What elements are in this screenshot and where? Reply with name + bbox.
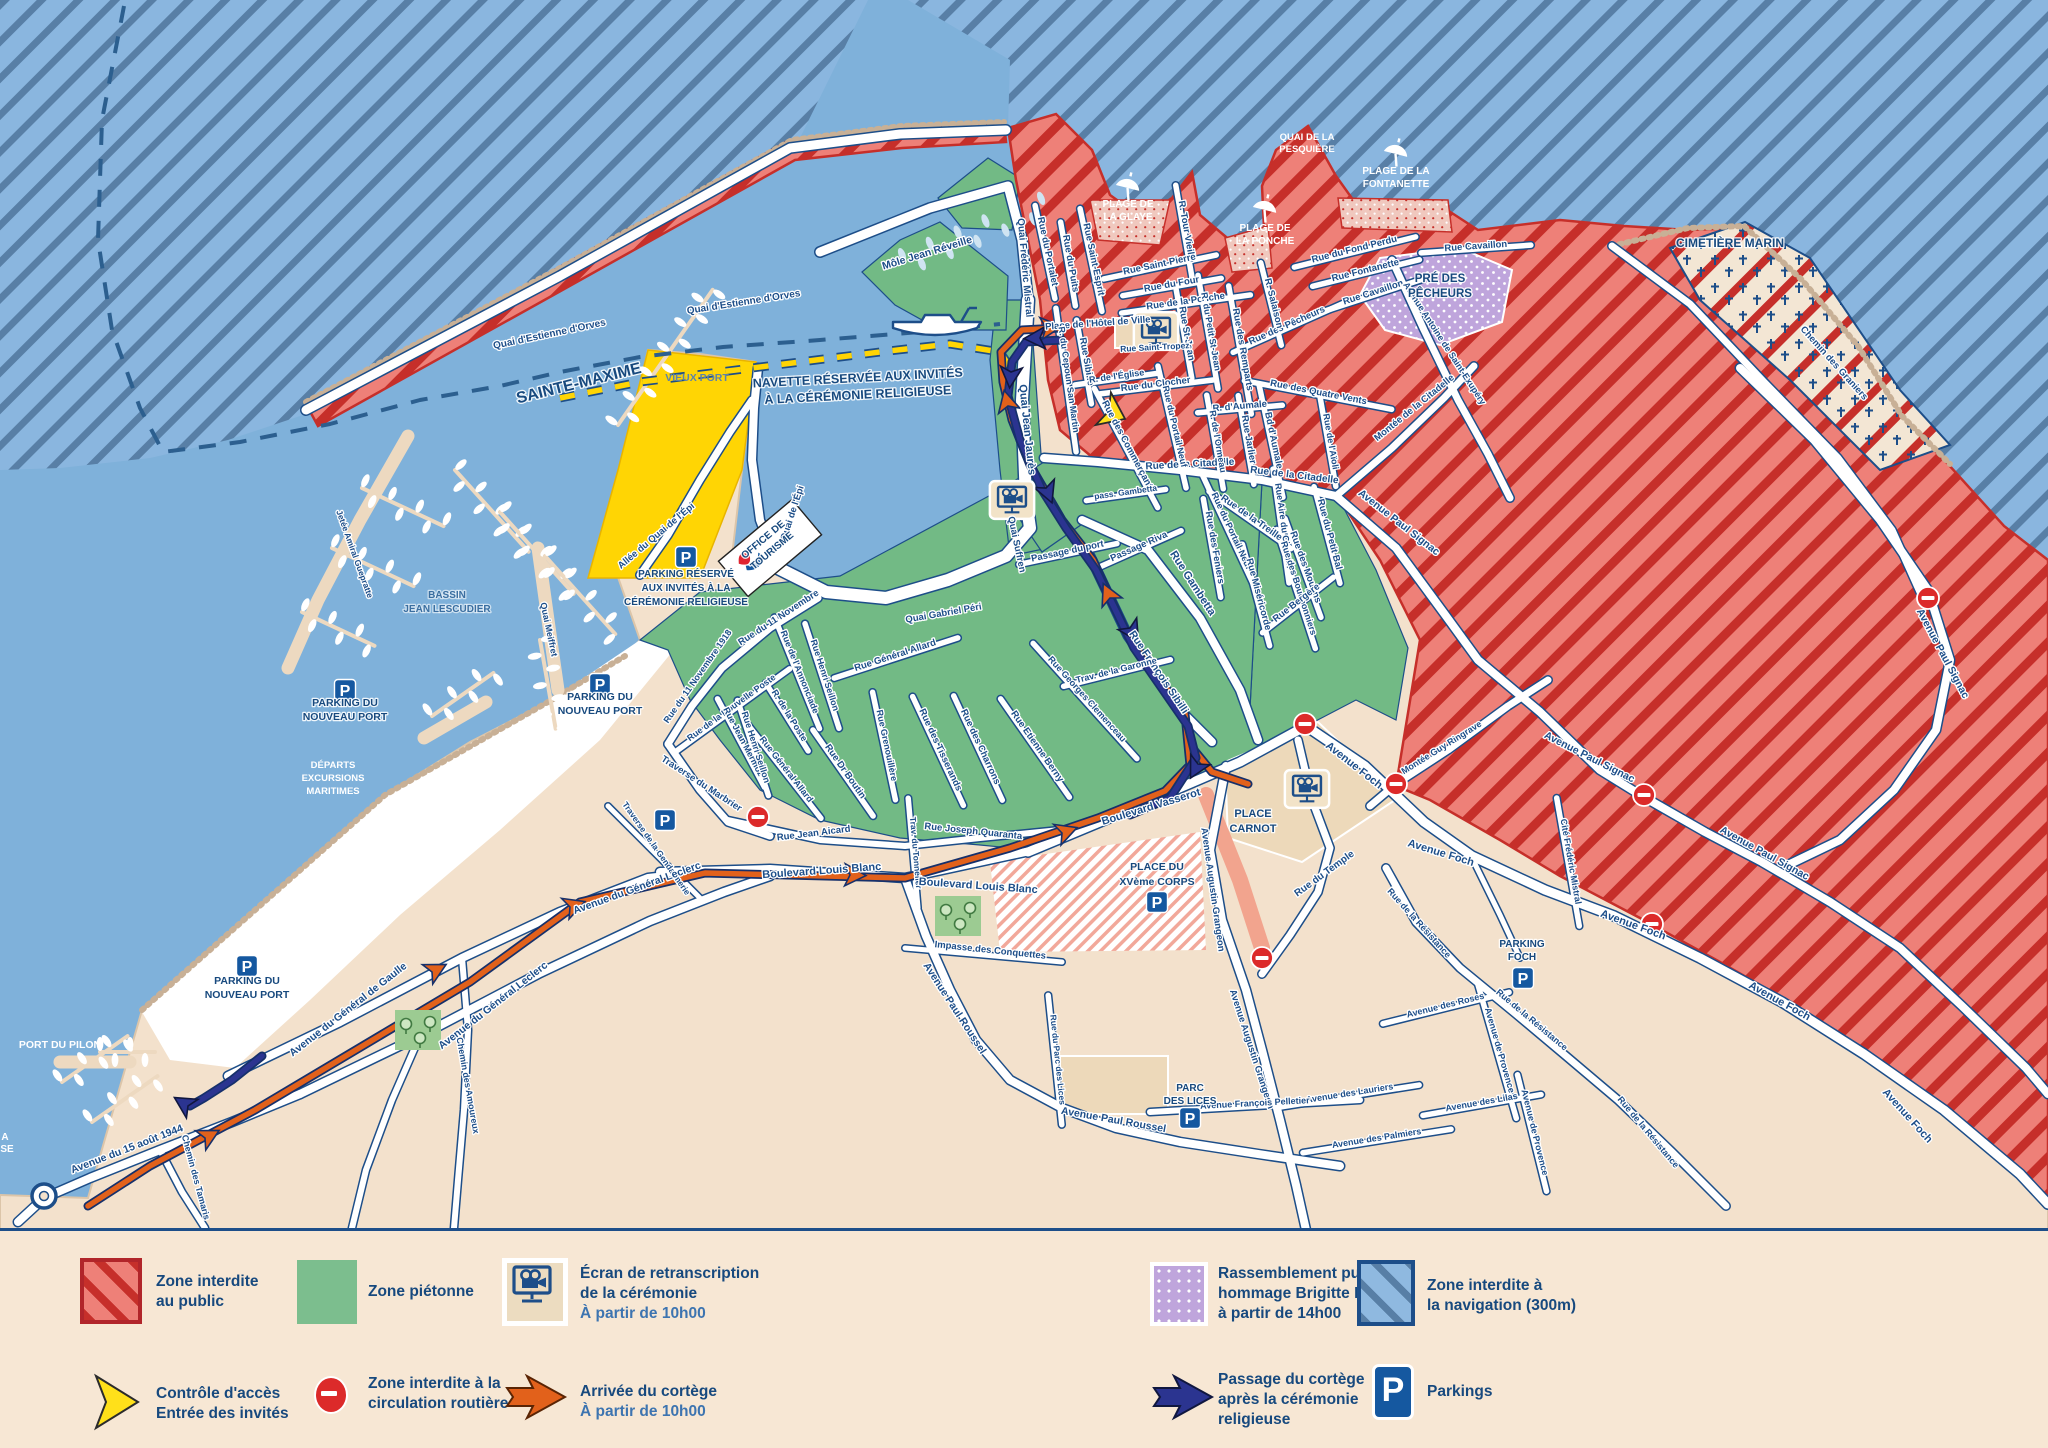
area-label: LA GLAYE bbox=[1103, 212, 1153, 223]
area-label: DES LICES bbox=[1164, 1096, 1217, 1107]
parking-icon: P bbox=[655, 810, 676, 831]
area-label: PRÉ DES bbox=[1415, 272, 1466, 285]
area-label: MARITIMES bbox=[306, 786, 359, 797]
area-label: PÊCHEURS bbox=[1408, 287, 1472, 300]
park bbox=[935, 896, 981, 936]
saint-tropez-ceremony-map: PPPPPPPPQuai d'Estienne d'OrvesQuai d'Es… bbox=[0, 0, 2048, 1448]
parking-icon: P bbox=[676, 547, 697, 568]
tree-icon bbox=[401, 1019, 412, 1030]
area-label: PORT DU PILON bbox=[19, 1039, 101, 1051]
parking-icon: P bbox=[1513, 968, 1534, 989]
parking-icon: P bbox=[1372, 1364, 1414, 1420]
area-label: PARC bbox=[1176, 1083, 1204, 1094]
tree-icon bbox=[425, 1017, 436, 1028]
legend-label-zone-interdite: Zone interditeau public bbox=[156, 1272, 258, 1312]
svg-text:P: P bbox=[1152, 895, 1163, 912]
legend-label-ecran: Écran de retranscriptionde la cérémonieÀ… bbox=[580, 1264, 759, 1324]
legend-label-arrivee: Arrivée du cortègeÀ partir de 10h00 bbox=[580, 1382, 717, 1422]
area-label: A bbox=[1, 1132, 8, 1143]
tree-icon bbox=[415, 1033, 426, 1044]
legend-swatch-zone-interdite bbox=[80, 1258, 142, 1324]
legend-label-parkings: Parkings bbox=[1427, 1382, 1492, 1402]
area-label: PLACE bbox=[1234, 808, 1271, 820]
area-label: JEAN LESCUDIER bbox=[403, 604, 491, 615]
area-label: NOUVEAU PORT bbox=[558, 705, 643, 717]
area-label: PLAGE DE bbox=[1102, 199, 1153, 210]
area-label: PLACE DU bbox=[1130, 861, 1184, 873]
legend-label-circulation: Zone interdite à lacirculation routière bbox=[368, 1374, 508, 1414]
legend-label-navigation: Zone interdite àla navigation (300m) bbox=[1427, 1276, 1576, 1316]
tree-icon bbox=[941, 905, 952, 916]
legend-swatch-rassemblement bbox=[1150, 1262, 1208, 1326]
area-label: PARKING DU bbox=[312, 697, 378, 709]
svg-text:P: P bbox=[681, 550, 692, 567]
beach-zone bbox=[1338, 198, 1452, 232]
area-label: CÉRÉMONIE RELIGIEUSE bbox=[624, 595, 748, 608]
legend-swatch-zone-pietonne bbox=[297, 1260, 357, 1324]
moored-boat bbox=[142, 1053, 149, 1067]
svg-text:P: P bbox=[1185, 1111, 1196, 1128]
area-label: PARKING DU bbox=[214, 975, 280, 987]
area-label: LA PONCHE bbox=[1236, 236, 1295, 247]
svg-text:P: P bbox=[660, 813, 671, 830]
legend-swatch-navigation bbox=[1357, 1260, 1415, 1326]
area-label: PESQUIÈRE bbox=[1279, 144, 1334, 155]
legend-label-controle: Contrôle d'accèsEntrée des invités bbox=[156, 1384, 289, 1424]
area-label: FOCH bbox=[1508, 952, 1536, 963]
area-label: SE bbox=[0, 1144, 14, 1155]
screen-icon bbox=[1285, 770, 1329, 808]
legend-swatch-ecran bbox=[502, 1258, 568, 1326]
area-label: EXCURSIONS bbox=[302, 773, 365, 784]
svg-text:P: P bbox=[1518, 971, 1529, 988]
screen-icon bbox=[507, 1263, 557, 1309]
no-entry-icon bbox=[314, 1376, 348, 1414]
area-label: DÉPARTS bbox=[311, 760, 356, 771]
area-label: XVème CORPS bbox=[1119, 876, 1194, 888]
parking-icon: P bbox=[237, 956, 258, 977]
area-label: AUX INVITÉS À LA bbox=[642, 581, 731, 594]
parking-icon: P bbox=[1147, 892, 1168, 913]
svg-text:P: P bbox=[242, 959, 253, 976]
area-label: NOUVEAU PORT bbox=[205, 989, 290, 1001]
legend-label-zone-pietonne: Zone piétonne bbox=[368, 1282, 474, 1302]
area-label: FONTANETTE bbox=[1363, 179, 1430, 190]
area-label: VIEUX PORT bbox=[665, 372, 729, 384]
park bbox=[395, 1010, 441, 1050]
area-label: NOUVEAU PORT bbox=[303, 711, 388, 723]
area-label: BASSIN bbox=[428, 590, 466, 601]
area-label: PLAGE DE LA bbox=[1362, 166, 1429, 177]
legend-label-passage: Passage du cortègeaprès la cérémoniereli… bbox=[1218, 1370, 1364, 1430]
parking-icon: P bbox=[1180, 1108, 1201, 1129]
moored-boat bbox=[112, 1053, 119, 1067]
tree-icon bbox=[965, 903, 976, 914]
place-block bbox=[1060, 1056, 1168, 1114]
area-label: CIMETIÈRE MARIN bbox=[1676, 235, 1784, 250]
screen-icon bbox=[990, 481, 1034, 519]
area-label: PARKING bbox=[1499, 939, 1545, 950]
area-label: PLAGE DE bbox=[1239, 223, 1290, 234]
area-label: PARKING RÉSERVÉ bbox=[638, 567, 734, 580]
tree-icon bbox=[955, 919, 966, 930]
area-label: CARNOT bbox=[1229, 823, 1276, 835]
area-label: QUAI DE LA bbox=[1280, 132, 1335, 143]
area-label: PARKING DU bbox=[567, 691, 633, 703]
